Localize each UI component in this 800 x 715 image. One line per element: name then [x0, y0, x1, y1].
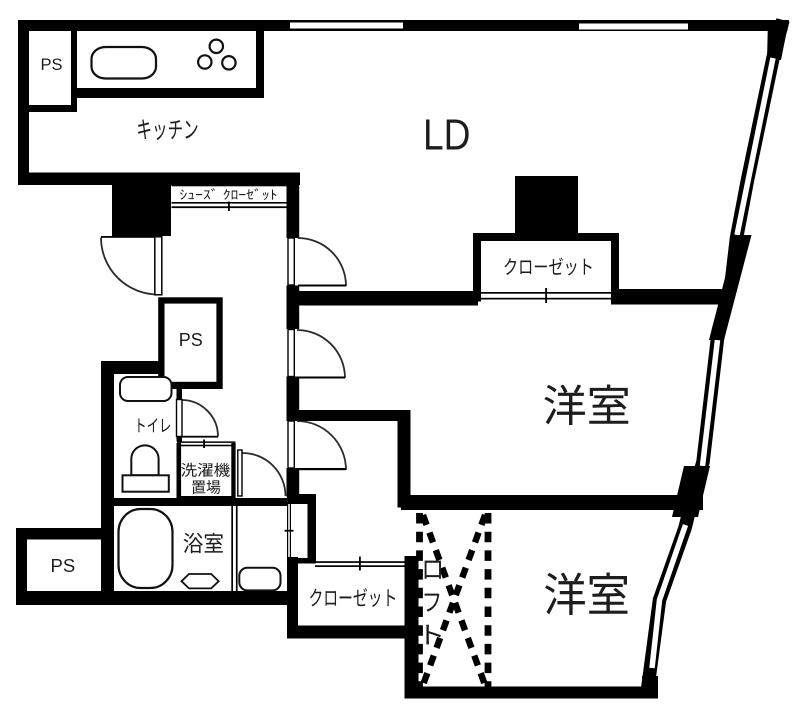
- svg-text:PS: PS: [179, 330, 203, 350]
- svg-text:PS: PS: [41, 56, 63, 74]
- svg-text:PS: PS: [51, 555, 76, 576]
- svg-text:LD: LD: [423, 112, 471, 160]
